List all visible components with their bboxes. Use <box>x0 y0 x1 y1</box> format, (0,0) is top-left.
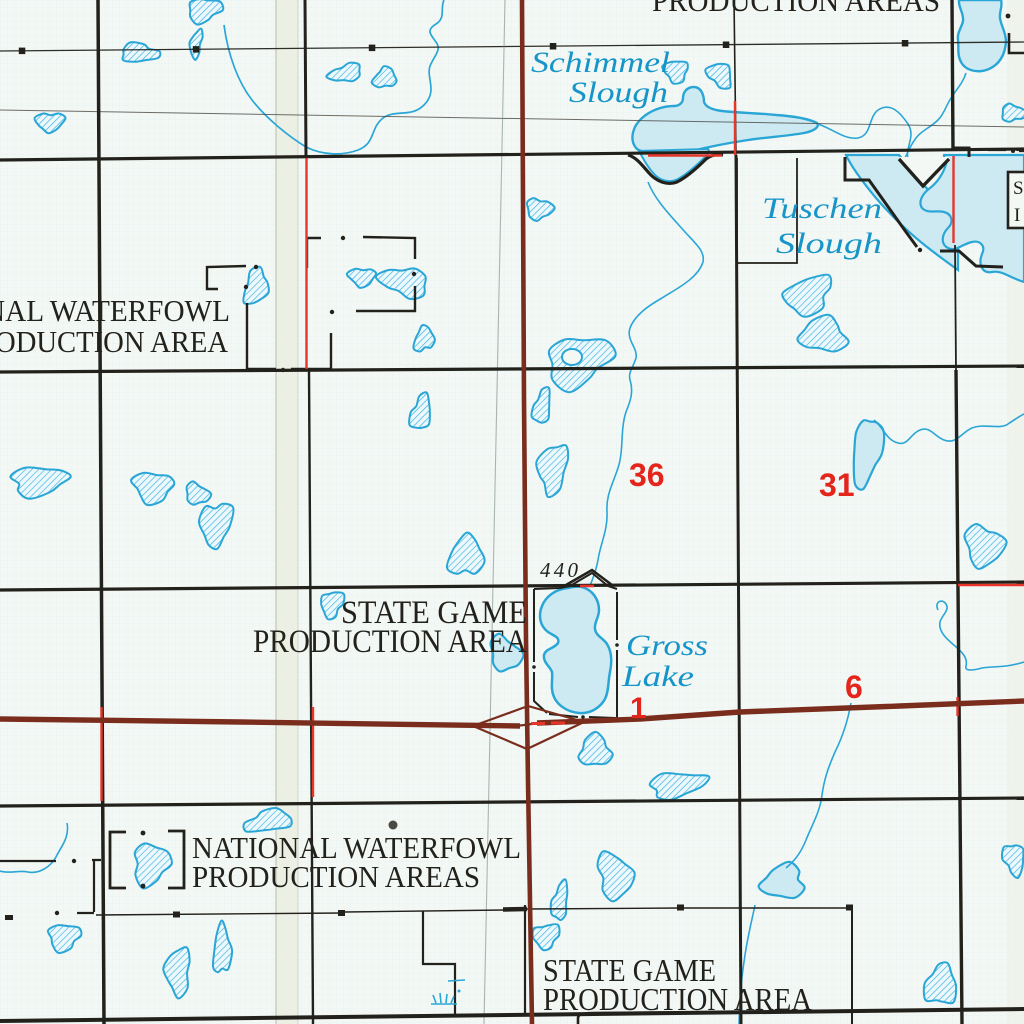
svg-text:NAL WATERFOWL: NAL WATERFOWL <box>0 293 230 328</box>
svg-text:I: I <box>1014 205 1020 226</box>
svg-text:PRODUCTION AREA: PRODUCTION AREA <box>0 324 229 359</box>
svg-text:440: 440 <box>540 558 579 582</box>
svg-text:Gross: Gross <box>626 629 708 662</box>
svg-text:31: 31 <box>819 467 855 503</box>
svg-text:Lake: Lake <box>621 660 694 693</box>
svg-text:Tuschen: Tuschen <box>762 192 882 225</box>
svg-text:36: 36 <box>629 457 665 493</box>
svg-text:PRODUCTION AREAS: PRODUCTION AREAS <box>192 859 480 894</box>
svg-text:PRODUCTION AREA: PRODUCTION AREA <box>253 624 527 660</box>
svg-text:Slough: Slough <box>569 76 668 109</box>
svg-text:Slough: Slough <box>776 227 882 260</box>
svg-text:6: 6 <box>845 669 863 705</box>
svg-text:PRODUCTION AREAS: PRODUCTION AREAS <box>652 0 940 18</box>
svg-text:S: S <box>1013 178 1024 199</box>
svg-text:1: 1 <box>630 692 647 725</box>
svg-text:Schimmel: Schimmel <box>531 46 670 79</box>
svg-text:PRODUCTION AREA: PRODUCTION AREA <box>543 981 812 1017</box>
